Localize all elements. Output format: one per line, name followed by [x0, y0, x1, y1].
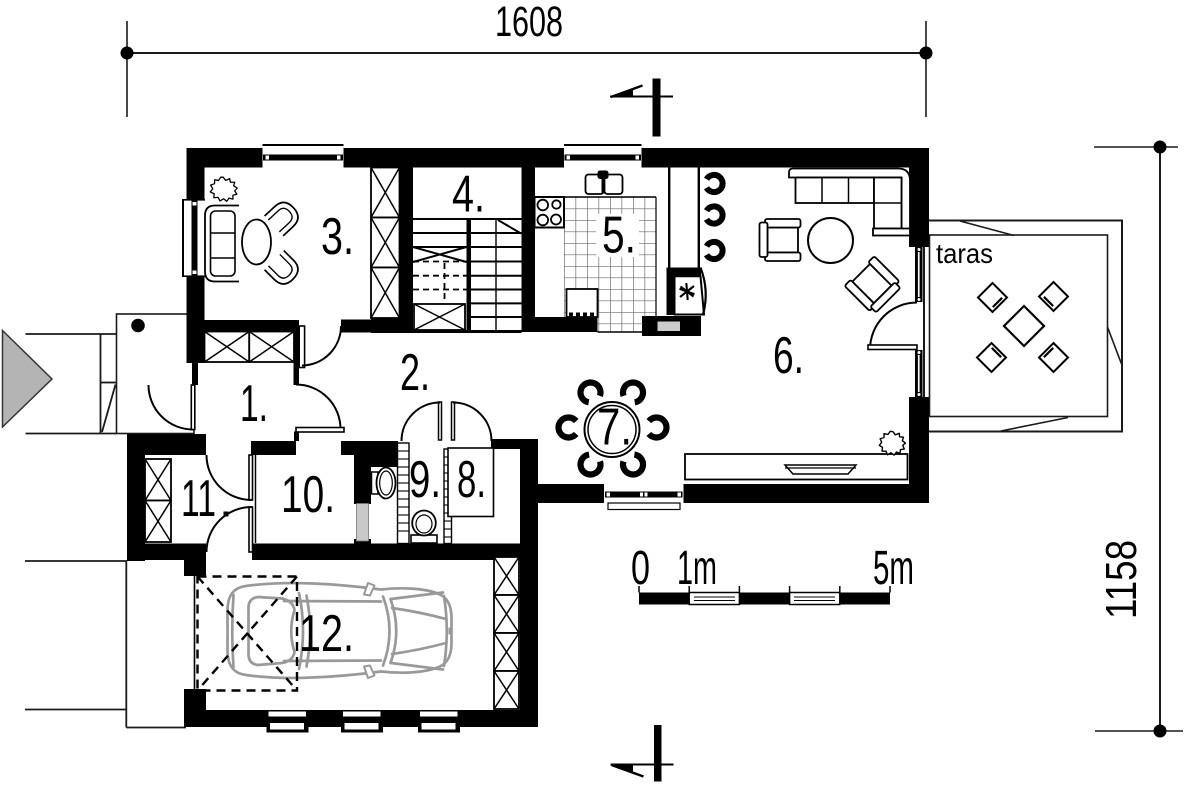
svg-text:3.: 3.	[321, 208, 354, 266]
svg-text:2.: 2.	[400, 344, 430, 402]
svg-text:6.: 6.	[773, 327, 804, 385]
svg-text:10.: 10.	[281, 466, 335, 524]
svg-text:7.: 7.	[597, 399, 632, 457]
svg-text:8.: 8.	[457, 451, 486, 509]
svg-text:5.: 5.	[602, 207, 636, 265]
svg-text:12.: 12.	[299, 605, 354, 663]
svg-text:4.: 4.	[452, 166, 485, 224]
svg-text:1608: 1608	[495, 0, 563, 46]
svg-text:taras: taras	[936, 238, 993, 269]
svg-text:0: 0	[631, 542, 650, 595]
svg-text:1.: 1.	[240, 375, 268, 433]
svg-text:11: 11	[181, 470, 216, 528]
svg-text:1m: 1m	[677, 542, 717, 595]
svg-text:5m: 5m	[873, 542, 914, 595]
svg-text:1158: 1158	[1097, 540, 1146, 619]
svg-text:9.: 9.	[409, 451, 441, 509]
